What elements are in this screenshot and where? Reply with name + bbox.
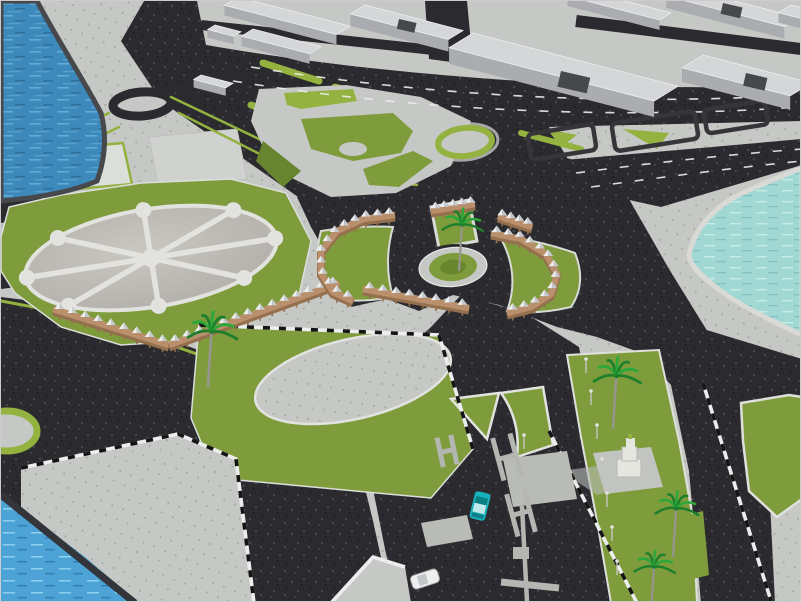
render-canvas: 3D aerial render of an urban corniche pl… [0,0,801,602]
plaza-square-east [149,129,247,187]
scene-svg [1,1,801,602]
crossing-apron [503,451,577,507]
garden-ring-island [1,411,37,451]
